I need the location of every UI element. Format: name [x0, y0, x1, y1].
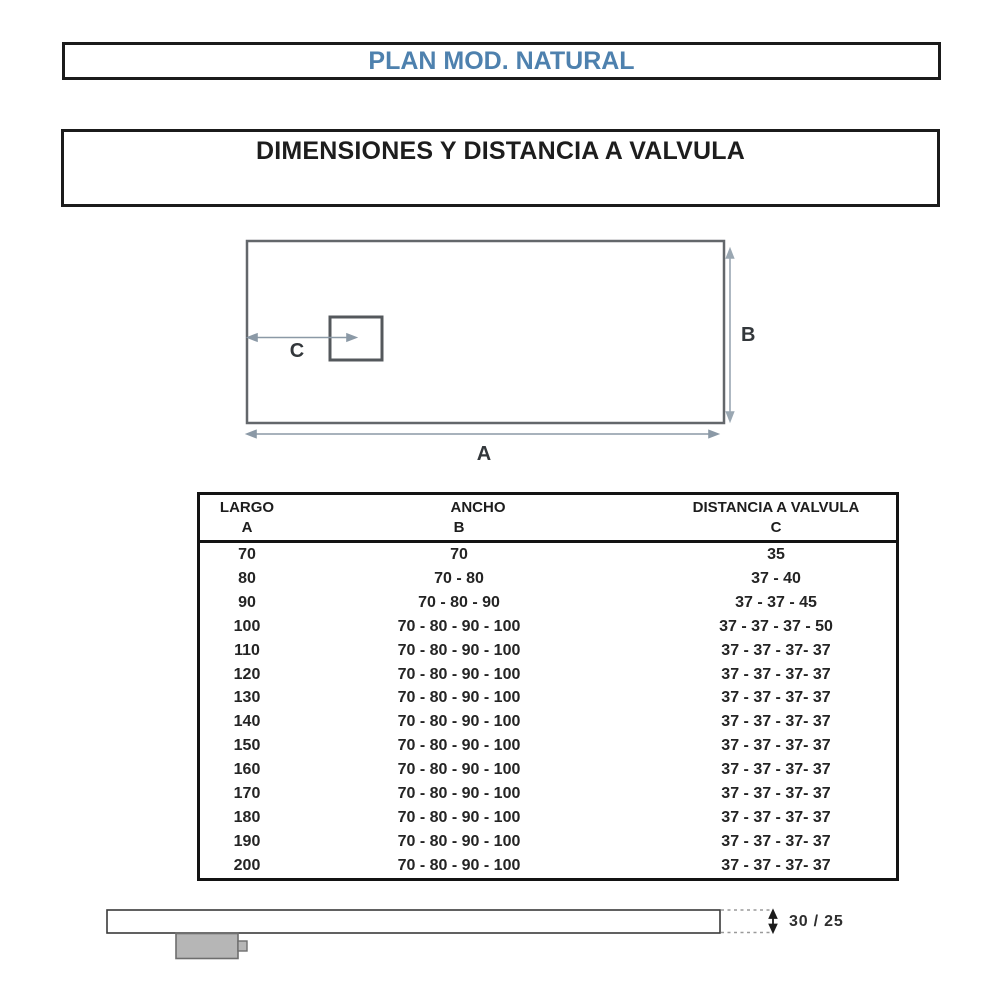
svg-text:C: C	[290, 340, 304, 362]
svg-text:30 / 25: 30 / 25	[789, 913, 844, 930]
svg-text:B: B	[741, 324, 755, 346]
svg-text:A: A	[477, 443, 491, 465]
